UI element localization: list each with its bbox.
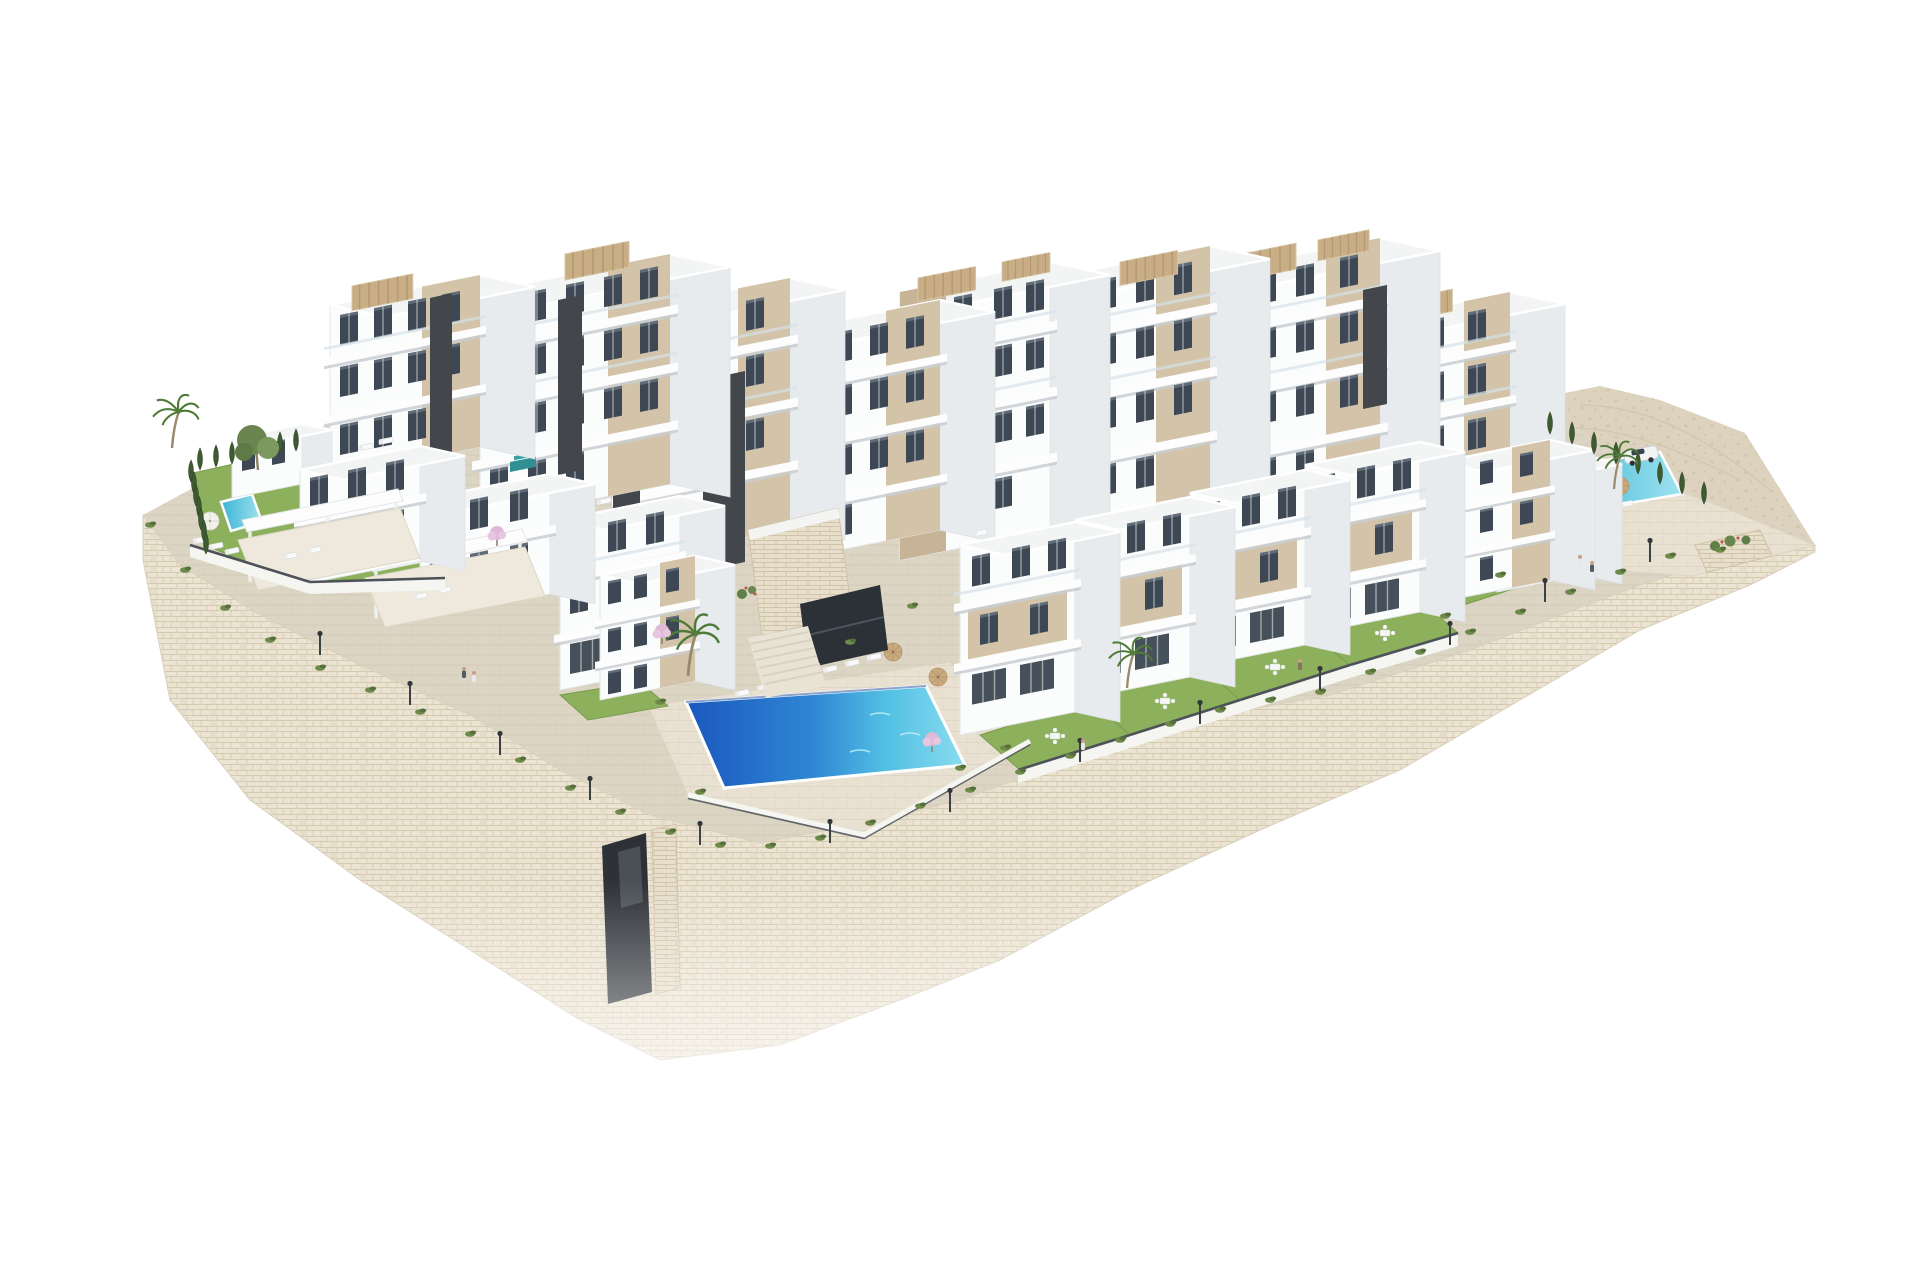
townhouse-t1 xyxy=(954,510,1120,735)
stair-core xyxy=(1363,285,1387,409)
palm-tree xyxy=(153,395,199,448)
architectural-render: Aerial 3D render of a terraced white res… xyxy=(0,0,1920,1280)
stair-core xyxy=(558,295,582,475)
wall-fade xyxy=(60,880,1880,1280)
architectural-render-canvas: Isometric aerial architectural rendering… xyxy=(0,0,1920,1280)
stair-core xyxy=(430,293,452,460)
pool-parasol xyxy=(929,668,947,686)
